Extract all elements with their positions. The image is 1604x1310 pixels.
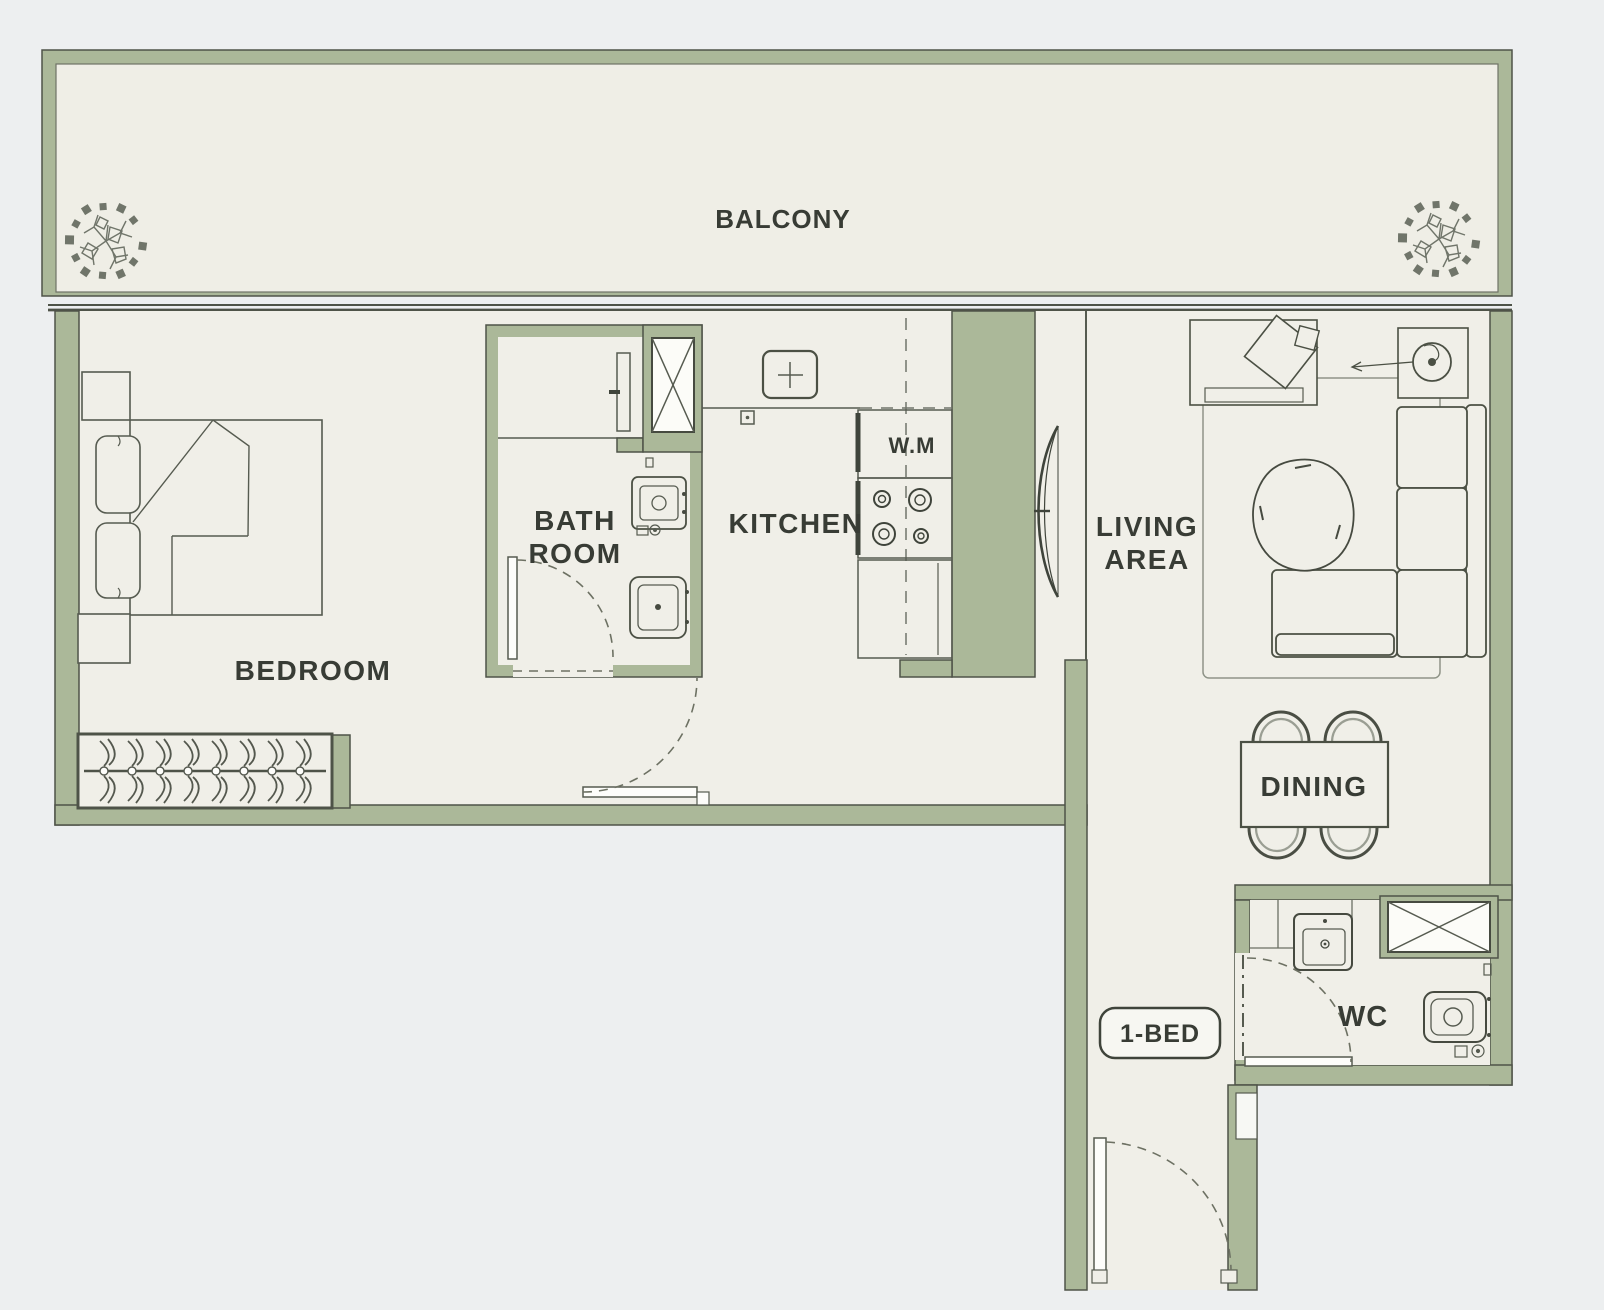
wc-toilet: [1424, 992, 1491, 1042]
pillow: [96, 436, 140, 513]
unit-type-badge-label: 1-BED: [1120, 1020, 1200, 1048]
wall-niche: [1236, 1093, 1257, 1139]
bathroom-sink: [632, 477, 686, 529]
room-bathroom: BATH ROOM: [486, 325, 702, 677]
washing-machine-label: W.M: [889, 433, 936, 458]
room-wc: WC: [1235, 885, 1512, 1085]
duct-shaft: [643, 325, 702, 452]
bathroom-toilet: [630, 577, 689, 638]
nightstand: [78, 614, 130, 663]
balcony-label: BALCONY: [715, 204, 851, 234]
living-label-line1: LIVING: [1096, 511, 1198, 542]
coffee-table: [1253, 459, 1354, 570]
living-label-line2: AREA: [1104, 544, 1189, 575]
wc-duct-shaft: [1380, 896, 1498, 958]
kitchen-sink: [763, 351, 817, 398]
tv-console: [1190, 316, 1319, 405]
unit-type-badge: 1-BED: [1100, 1008, 1220, 1058]
floor-plan-drawing: BALCONY: [0, 0, 1604, 1310]
wardrobe: [78, 734, 332, 808]
pillow: [96, 523, 140, 598]
floor-plan-page: BALCONY: [0, 0, 1604, 1310]
bed: [96, 420, 322, 615]
bathroom-label-line1: BATH: [534, 505, 616, 536]
balcony-floor: [56, 64, 1498, 292]
kitchen-label: KITCHEN: [729, 508, 864, 539]
dining-label: DINING: [1261, 771, 1368, 802]
bathroom-label-line2: ROOM: [528, 538, 621, 569]
wc-label: WC: [1338, 1001, 1388, 1033]
nightstand: [82, 372, 130, 420]
bedroom-label: BEDROOM: [235, 655, 392, 686]
room-balcony: BALCONY: [42, 50, 1512, 296]
